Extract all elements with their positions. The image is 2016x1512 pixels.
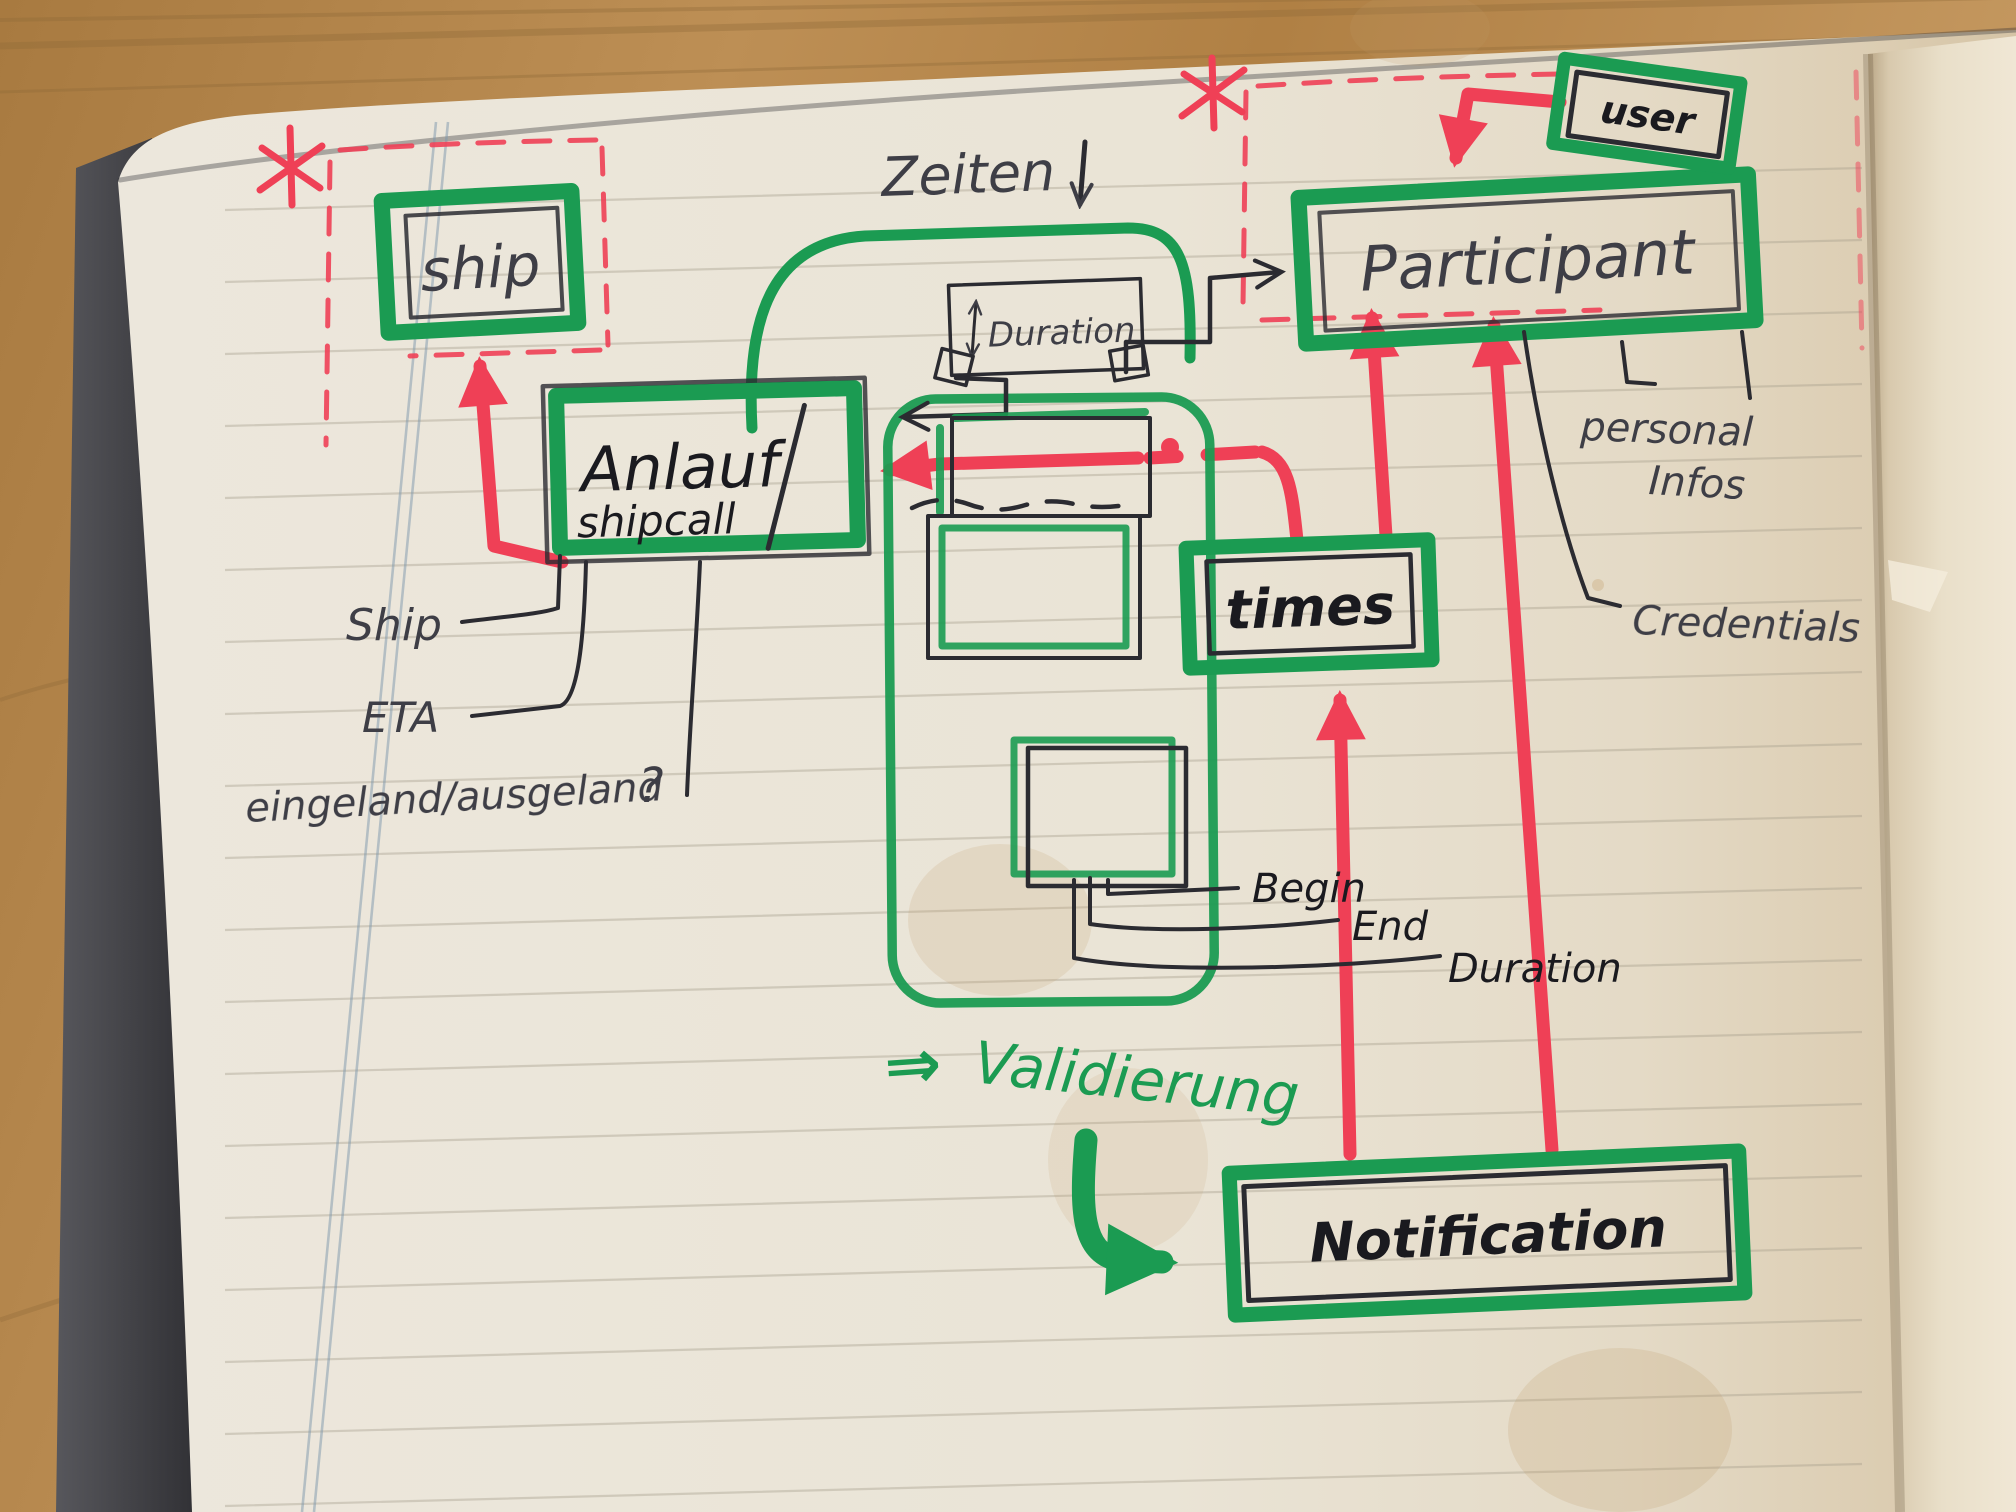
credentials-label: Credentials — [1632, 598, 1861, 652]
begin-attr-label: Begin — [1252, 866, 1366, 912]
duration-attr-label: Duration — [1448, 946, 1622, 992]
ship-attr-label: Ship — [346, 600, 442, 651]
personal-infos-label-1: personal — [1579, 404, 1754, 456]
red-dot — [1161, 438, 1179, 456]
entity-anlauf-title: Anlauf — [576, 428, 788, 506]
duration-updown-arrow — [974, 302, 976, 328]
inout-question-mark: ? — [638, 758, 663, 814]
entity-anlauf-subtitle: shipcall — [576, 494, 737, 547]
eta-attr-label: ETA — [362, 693, 439, 742]
end-attr-label: End — [1352, 904, 1429, 950]
validierung-arrow-icon: ⇒ — [882, 1024, 944, 1107]
entity-times-label: times — [1224, 573, 1395, 642]
personal-infos-label-2: Infos — [1647, 458, 1746, 509]
duration-updown-arrow2 — [972, 328, 974, 356]
zeiten-label: Zeiten — [878, 140, 1056, 209]
notebook-photo-scene: Duration ship Anlauf shipcall Participan… — [0, 0, 2016, 1512]
sketch-canvas: Duration ship Anlauf shipcall Participan… — [0, 0, 2016, 1512]
entity-ship-label: ship — [419, 231, 542, 305]
